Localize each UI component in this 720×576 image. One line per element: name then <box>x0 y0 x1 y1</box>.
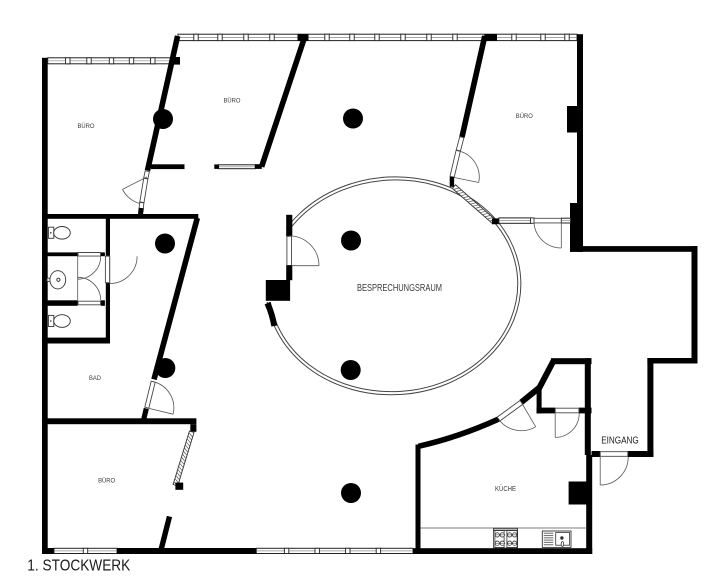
svg-text:EINGANG: EINGANG <box>601 435 639 446</box>
svg-text:BAD: BAD <box>89 375 101 382</box>
svg-text:BÜRO: BÜRO <box>98 476 115 484</box>
svg-text:1. STOCKWERK: 1. STOCKWERK <box>27 558 130 575</box>
svg-text:BESPRECHUNGSRAUM: BESPRECHUNGSRAUM <box>357 283 442 294</box>
svg-text:BÜRO: BÜRO <box>516 112 533 120</box>
svg-text:BÜRO: BÜRO <box>224 97 241 105</box>
svg-text:KÜCHE: KÜCHE <box>495 485 516 493</box>
svg-text:BÜRO: BÜRO <box>78 122 95 130</box>
